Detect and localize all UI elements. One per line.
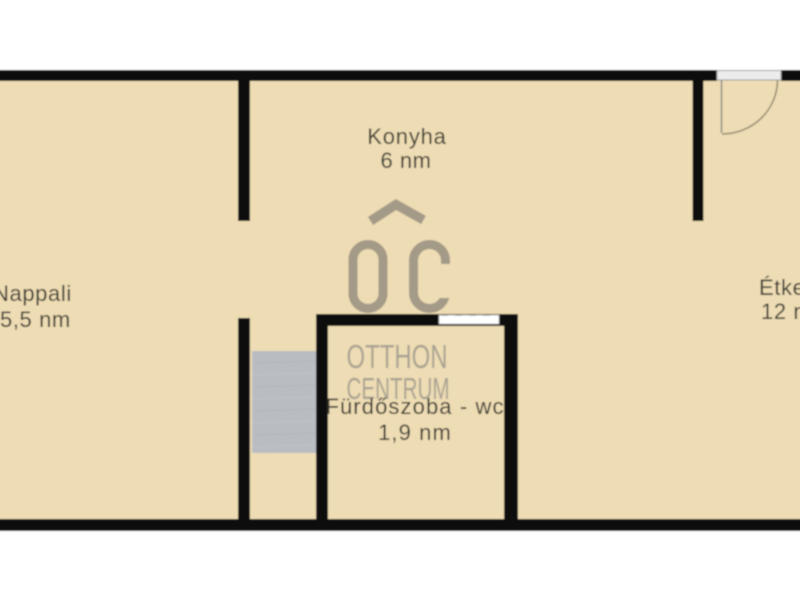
svg-text:5,5 nm: 5,5 nm: [0, 307, 71, 332]
svg-text:12 nm: 12 nm: [761, 299, 800, 324]
svg-text:Étkező: Étkező: [759, 275, 800, 300]
svg-text:Nappali: Nappali: [0, 281, 72, 306]
svg-text:Fürdőszoba - wc: Fürdőszoba - wc: [325, 394, 504, 419]
svg-text:OTTHON: OTTHON: [347, 338, 448, 375]
svg-text:1,9 nm: 1,9 nm: [378, 420, 452, 445]
svg-text:Konyha: Konyha: [367, 124, 446, 149]
svg-text:6 nm: 6 nm: [381, 148, 432, 173]
